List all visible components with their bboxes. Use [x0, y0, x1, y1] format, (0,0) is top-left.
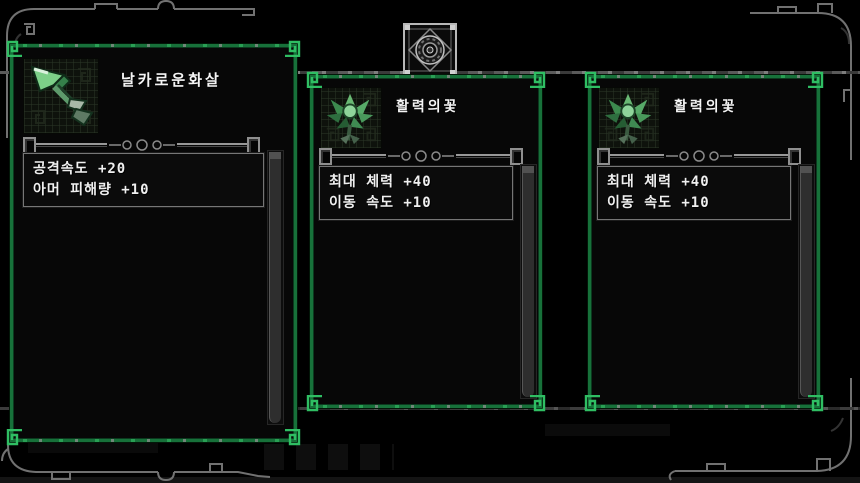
- green-corner-ornament: [305, 70, 323, 88]
- item-tooltip-vitality-flower-2[interactable]: 활력의꽃 최대 체력 +40 이동 속도 +10: [588, 75, 820, 408]
- item-tooltip-sharp-arrow[interactable]: 날카로운화살 공격속도 +20 아머 피해량 +10: [10, 44, 297, 442]
- stat-line: 최대 체력 +40: [607, 172, 781, 193]
- divider-endcap: [23, 137, 36, 154]
- green-corner-ornament: [807, 70, 825, 88]
- green-corner-ornament: [807, 395, 825, 413]
- stat-line: 아머 피해량 +10: [33, 180, 254, 201]
- item-title: 활력의꽃: [674, 96, 738, 116]
- ornate-divider: [319, 148, 523, 164]
- border-ornament-strip: [323, 405, 529, 408]
- item-icon-tile: [320, 87, 382, 149]
- item-icon-tile: [598, 87, 660, 149]
- green-corner-ornament: [529, 395, 547, 413]
- scrollbar-thumb[interactable]: [522, 166, 534, 397]
- divider-endcap: [319, 148, 332, 165]
- game-screen: 날카로운화살 공격속도 +20 아머 피해량 +10: [0, 0, 860, 483]
- border-ornament-strip: [23, 44, 284, 47]
- green-corner-ornament: [305, 395, 323, 413]
- stats-box: 최대 체력 +40 이동 속도 +10: [597, 166, 791, 220]
- green-corner-ornament: [284, 39, 302, 57]
- divider-endcap: [597, 148, 610, 165]
- green-corner-ornament: [529, 70, 547, 88]
- green-corner-ornament: [583, 395, 601, 413]
- divider-endcap: [788, 148, 801, 165]
- scrollbar[interactable]: [267, 150, 284, 425]
- ornate-divider: [597, 148, 801, 164]
- border-ornament-strip: [323, 75, 529, 78]
- divider-endcap: [510, 148, 523, 165]
- medallion-emblem: [403, 23, 457, 77]
- item-icon-tile: [23, 58, 99, 134]
- stats-box: 공격속도 +20 아머 피해량 +10: [23, 153, 264, 207]
- arrow-icon: [24, 59, 98, 133]
- green-corner-ornament: [284, 429, 302, 447]
- stat-line: 이동 속도 +10: [329, 193, 503, 214]
- stat-line: 이동 속도 +10: [607, 193, 781, 214]
- divider-center-ornament: [664, 150, 734, 162]
- green-corner-ornament: [5, 429, 23, 447]
- corner-flourish-bottom-left: [0, 435, 285, 483]
- stat-line: 최대 체력 +40: [329, 172, 503, 193]
- flower-icon: [599, 88, 659, 148]
- green-corner-ornament: [5, 39, 23, 57]
- stat-line: 공격속도 +20: [33, 159, 254, 180]
- border-ornament-strip: [23, 439, 284, 442]
- item-tooltip-vitality-flower-1[interactable]: 활력의꽃 최대 체력 +40 이동 속도 +10: [310, 75, 542, 408]
- scrollbar-thumb[interactable]: [269, 152, 281, 423]
- divider-endcap: [247, 137, 260, 154]
- border-ornament-strip: [601, 405, 807, 408]
- scrollbar-thumb[interactable]: [800, 166, 812, 397]
- item-title: 활력의꽃: [396, 96, 460, 116]
- scrollbar[interactable]: [798, 164, 815, 399]
- dim-background-remnant: [545, 424, 670, 436]
- divider-center-ornament: [107, 139, 177, 151]
- scrollbar[interactable]: [520, 164, 537, 399]
- border-ornament-strip: [601, 75, 807, 78]
- ornate-divider: [23, 137, 260, 153]
- stats-box: 최대 체력 +40 이동 속도 +10: [319, 166, 513, 220]
- item-title: 날카로운화살: [121, 69, 222, 90]
- green-corner-ornament: [583, 70, 601, 88]
- flower-icon: [321, 88, 381, 148]
- divider-center-ornament: [386, 150, 456, 162]
